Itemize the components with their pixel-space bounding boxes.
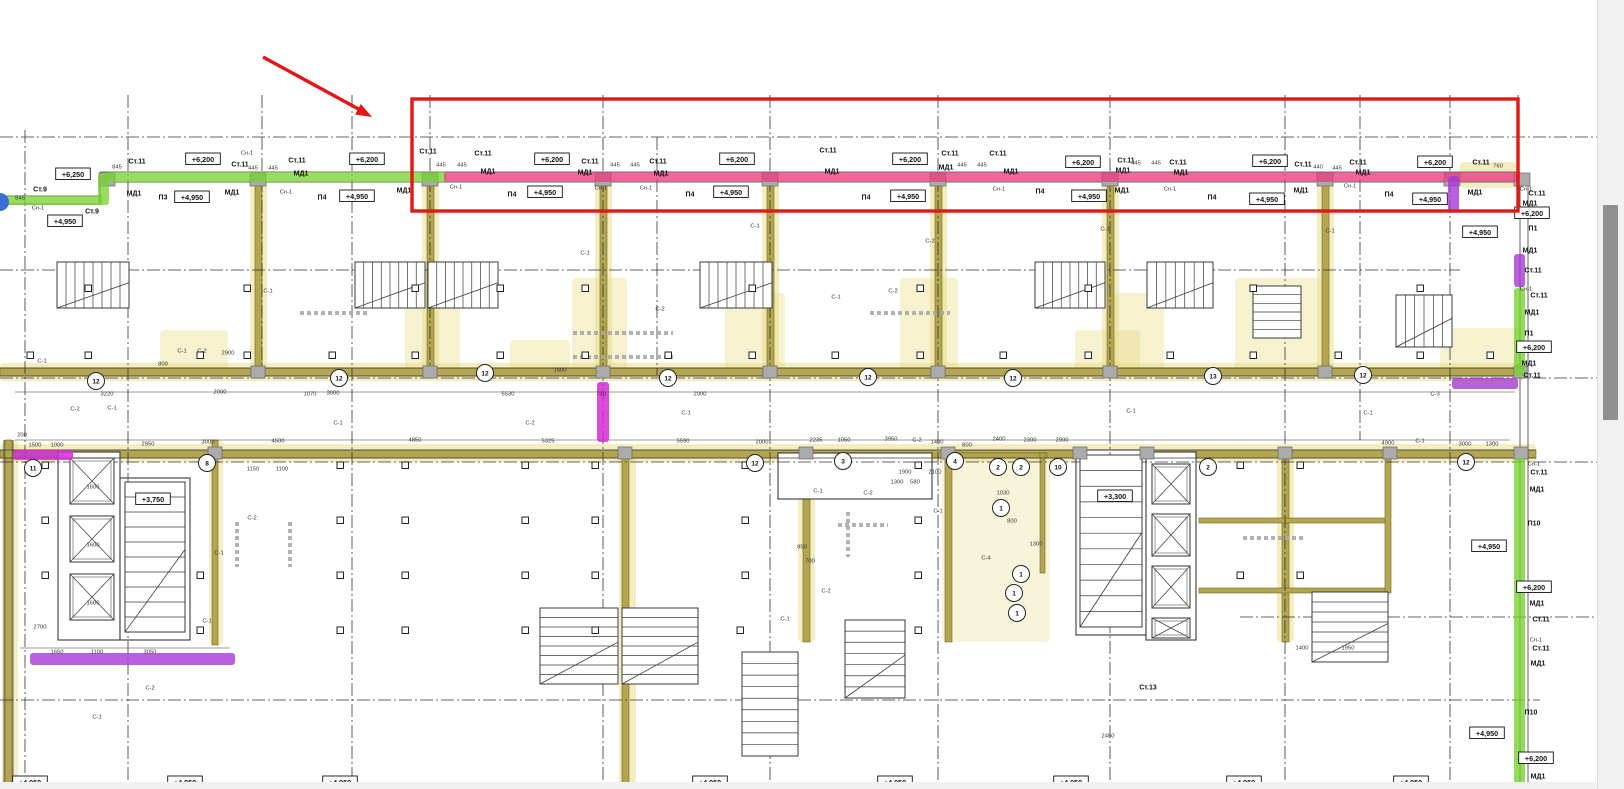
wall-type-label: МД1 [294,171,309,178]
column-marker [665,352,672,359]
dim-label: 1600 [87,485,100,491]
wall-type-label: МД1 [825,169,840,176]
wall-type-label: МД1 [1522,361,1537,368]
boxed-elevation-text: +6,200 [1259,157,1281,166]
grid-bubble-number: 12 [1462,459,1470,466]
wall-type-label: Ст.11 [1524,268,1541,275]
column-marker [832,352,839,359]
column-marker [1250,352,1257,359]
column-marker [1237,462,1244,469]
column-marker [402,627,409,634]
vertical-scrollbar-track[interactable] [1597,0,1624,789]
column-marker [522,572,529,579]
stair-symbol [1147,262,1213,308]
dim-label: 5590 [677,439,690,445]
wall-type-label: П10 [1525,710,1538,717]
concrete-column [596,366,610,378]
dim-label: Сн-1 [640,186,653,192]
wall-type-label: Ст.11 [474,151,491,158]
wall-highlight-yellow [160,330,228,372]
column-marker [1167,352,1174,359]
concrete-column [1073,447,1087,459]
column-marker [42,517,49,524]
dim-label: С-1 [107,406,116,412]
wall-type-label: Ст.9 [85,209,99,216]
dim-label: 2950 [142,442,155,448]
dim-label: С-1 [1100,227,1109,233]
dim-label: С-1 [333,421,342,427]
dim-label: С-1 [202,619,211,625]
wall-highlight-purple [1452,378,1518,389]
dim-label: 2900 [222,351,235,357]
boxed-elevation-text: +6,200 [1525,754,1547,763]
boxed-elevation-text: +4,950 [897,192,919,201]
wall-segment [212,440,218,645]
dim-label: 445 [610,163,620,169]
dim-label: 1050 [838,438,851,444]
boxed-elevation-text: +4,950 [720,188,742,197]
concrete-column [251,366,265,378]
boxed-elevation-text: +4,950 [534,188,556,197]
wall-highlight-magenta [13,450,73,460]
wall-type-label: П4 [1385,192,1394,199]
dim-label: 730 [596,392,606,398]
wall-type-label: МД1 [1004,169,1019,176]
dim-label: 3050 [144,650,157,656]
wall-type-label: Ст.11 [1530,293,1547,300]
drawing-viewer: 1212121212121312118123422102121111+6,250… [0,0,1624,789]
dim-label: 445 [630,163,640,169]
dim-label: 2300 [1024,438,1037,444]
wall-highlight-purple [1514,254,1525,287]
dim-label: С-1 [1325,229,1334,235]
dim-label: Сн-1 [450,185,463,191]
dim-label: 440 [1313,165,1323,171]
grid-bubble-number: 11 [30,465,37,472]
boxed-elevation-text: +6,200 [1072,158,1094,167]
dim-label: Сн-1 [1344,184,1357,190]
wall-type-label: Ст.11 [649,159,666,166]
dim-label: 1500 [554,368,567,374]
wall-type-label: П4 [686,192,695,199]
dim-label: Сн-1 [280,190,293,196]
grid-bubble-number: 12 [92,378,100,385]
dim-label: 1600 [87,543,100,549]
wall-type-label: П4 [1036,189,1045,196]
dim-label: С-2 [197,349,206,355]
dim-label: С-1 [813,489,822,495]
column-marker [522,462,529,469]
grid-bubble-number: 10 [1054,464,1062,471]
dim-label: С-2 [912,438,921,444]
dim-label: 800 [158,362,168,368]
column-marker [1250,285,1257,292]
column-marker [337,572,344,579]
wall-highlight-yellow [510,340,570,370]
wall-type-label: МД1 [1174,170,1189,177]
column-marker [1297,572,1304,579]
wall-type-label: Ст.11 [1523,373,1540,380]
grid-bubble-number: 1 [999,505,1003,512]
wall-type-label: Ст.11 [1528,191,1545,198]
wall-type-label: Ст.11 [128,159,145,166]
boxed-elevation-text: +6,200 [899,155,921,164]
dim-label: 200 [17,433,27,439]
column-marker [85,285,92,292]
dim-label: С-1 [580,251,589,257]
dim-label: 445 [436,163,446,169]
dim-label: 5325 [542,439,555,445]
boxed-elevation-text: +4,950 [181,193,203,202]
concrete-column [1514,447,1528,459]
grid-bubble-number: 12 [864,374,872,381]
boxed-elevation-text: +4,950 [1419,195,1441,204]
wall-type-label: П4 [508,192,517,199]
wall-segment [945,453,952,642]
dim-label: 1300 [1030,542,1043,548]
boxed-elevation-text: +6,250 [62,170,84,179]
dim-label: 1100 [276,467,288,473]
grid-bubble-number: 1 [1019,571,1023,578]
boxed-elevation-text: +6,200 [1521,209,1543,218]
column-marker [1487,352,1494,359]
grid-bubble-number: 1 [1015,610,1019,617]
stair-symbol [1312,592,1388,662]
wall-type-label: МД1 [1530,487,1545,494]
column-marker [1335,352,1342,359]
wall-type-label: МД1 [127,191,142,198]
column-marker [402,462,409,469]
column-marker [1085,352,1092,359]
dim-label: 1950 [1342,646,1355,652]
boxed-elevation-text: +6,200 [356,155,378,164]
dim-label: Сн-1 [1164,187,1177,193]
dim-label: Сн-1 [1528,462,1541,468]
column-marker [42,572,49,579]
wall-highlight-green [106,172,446,182]
wall-segment [255,181,262,370]
grid-bubble-number: 8 [205,460,209,467]
wall-type-label: Ст.11 [1532,617,1549,624]
column-marker [917,285,924,292]
boxed-elevation-text: +3,750 [142,495,164,504]
column-marker [582,285,589,292]
grid-bubble-number: 12 [481,370,489,377]
concrete-column [618,447,632,459]
dim-label: 3950 [885,437,898,443]
column-marker [27,352,34,359]
wall-highlight-green [1514,458,1525,789]
dim-label: С-1 [1415,439,1424,445]
column-marker [197,572,204,579]
grid-bubble-number: 2 [996,464,1000,471]
dim-label: 1300 [891,480,904,486]
dim-label: 2000 [214,390,227,396]
dim-label: 3000 [1459,442,1472,448]
dim-label: С-1 [750,224,759,230]
wall-segment [1385,453,1391,593]
dim-label: 1500 [29,443,42,449]
wall-type-label: МД1 [1468,190,1483,197]
dim-label: 1400 [1296,646,1309,652]
dim-label: 845 [112,165,122,171]
dim-label: С-1 [780,617,789,623]
column-marker [85,352,92,359]
dim-label: С-1 [92,715,101,721]
column-marker [402,517,409,524]
dim-label: 845 [15,196,25,202]
column-marker [592,627,599,634]
column-marker [592,517,599,524]
wall-type-label: Ст.11 [1169,160,1186,167]
floor-plan-svg: 1212121212121312118123422102121111+6,250… [0,0,1597,789]
column-marker [522,517,529,524]
column-marker [1297,462,1304,469]
boxed-elevation-text: +6,200 [192,155,214,164]
dim-label: 1600 [87,601,100,607]
wall-type-label: Ст.11 [989,151,1006,158]
wall-type-label: МД1 [1294,188,1309,195]
dim-label: 4850 [409,438,422,444]
dim-label: С-1 [831,295,840,301]
dim-label: 1000 [51,443,64,449]
dim-label: 4500 [272,439,285,445]
dim-label: С-1 [37,359,46,365]
dim-label: С-2 [247,516,256,522]
grid-bubble-number: 12 [664,375,672,382]
stair-symbol [845,620,905,698]
dim-label: 3220 [101,392,114,398]
dim-label: С-2 [821,589,830,595]
wall-type-label: П1 [1525,331,1534,338]
dim-label: С-1 [263,289,272,295]
wall-type-label: МД1 [481,169,496,176]
wall-type-label: МД1 [578,170,593,177]
wall-type-label: Ст.11 [581,159,598,166]
wall-segment [5,440,12,789]
boxed-elevation-text: +6,200 [1523,583,1545,592]
dim-label: С-2 [655,307,664,313]
dim-label: 5530 [502,392,515,398]
dim-label: С-2 [888,289,897,295]
grid-bubble-number: 2 [1206,464,1210,471]
dim-label: 4900 [1382,441,1395,447]
concrete-column [931,366,945,378]
wall-type-label: П4 [1208,195,1217,202]
dim-label: С-1 [681,411,690,417]
column-marker [749,285,756,292]
dim-label: 445 [457,163,467,169]
dim-label: 445 [268,166,278,172]
column-marker [915,572,922,579]
concrete-column [1383,447,1397,459]
wall-type-label: МД1 [397,188,412,195]
wall-type-label: Ст.13 [1139,685,1157,692]
boxed-elevation-text: +6,200 [1424,158,1446,167]
vertical-scrollbar-thumb[interactable] [1603,205,1618,420]
dim-label: 445 [977,163,987,169]
column-marker [337,462,344,469]
column-marker [337,517,344,524]
dim-label: С-4 [981,556,991,562]
dim-label: 1100 [91,650,103,656]
grid-bubble-number: 12 [1009,375,1017,382]
column-marker [917,352,924,359]
wall-type-label: МД1 [1523,201,1538,208]
dim-label: 445 [1332,166,1342,172]
dim-label: 445 [248,166,258,172]
wall-type-label: МД1 [1525,310,1540,317]
wall-type-label: Ст.9 [33,187,47,194]
column-marker [1417,285,1424,292]
dim-label: С-1 [214,551,223,557]
annotation-arrowhead [355,104,372,117]
wall-type-label: МД1 [1116,168,1131,175]
grid-bubble-number: 3 [841,458,845,465]
dim-label: 1650 [51,650,64,656]
dim-label: С-2 [70,407,79,413]
room-outline [778,453,932,499]
dim-label: С-1 [177,349,186,355]
grid-bubble-number: 12 [335,375,343,382]
dim-label: 580 [910,480,920,486]
dim-label: Сн-1 [241,151,254,157]
dim-label: С-2 [525,421,534,427]
column-marker [1237,572,1244,579]
bottom-bar [0,782,1597,789]
dim-label: 2400 [993,437,1006,443]
column-marker [244,352,251,359]
column-marker [197,627,204,634]
column-marker [497,352,504,359]
column-marker [1417,352,1424,359]
dim-label: Сн-1 [32,206,45,212]
dim-label: 2000 [756,440,769,446]
wall-type-label: МД1 [1523,248,1538,255]
column-marker [742,517,749,524]
stair-symbol [742,652,798,756]
annotation-red-arrow [263,57,364,112]
dim-label: 445 [1151,161,1161,167]
wall-type-label: МД1 [225,190,240,197]
column-marker [412,285,419,292]
wall-type-label: Ст.11 [231,162,248,169]
wall-segment [0,368,1522,376]
column-marker [915,627,922,634]
wall-type-label: Ст.11 [819,148,836,155]
dim-label: 1300 [1486,442,1499,448]
boxed-elevation-text: +4,950 [54,217,76,226]
dim-label: 1150 [247,467,259,473]
dim-label: 445 [957,163,967,169]
wall-type-label: П4 [318,195,327,202]
column-marker [1000,352,1007,359]
dim-label: Сн-1 [1530,638,1543,644]
wall-segment [1199,518,1389,523]
dim-label: 1400 [931,440,944,446]
wall-segment [0,450,1536,458]
dim-label: 1900 [899,470,912,476]
boxed-elevation-text: +4,950 [346,192,368,201]
column-marker [592,572,599,579]
column-marker [737,627,744,634]
column-marker [42,462,49,469]
dim-label: 3000 [202,440,215,446]
dim-label: 3000 [327,391,340,397]
wall-type-label: МД1 [1356,170,1371,177]
concrete-column [763,366,777,378]
dim-label: С-3 [1430,392,1439,398]
concrete-column [1103,366,1117,378]
annotation-red-box [412,99,1518,211]
column-marker [497,285,504,292]
boxed-elevation-text: +6,200 [1523,343,1545,352]
wall-highlight-yellow [900,278,958,370]
dim-label: 2100 [929,470,942,476]
dim-label: С-1 [1363,411,1372,417]
column-marker [337,627,344,634]
wall-type-label: Ст.11 [1472,160,1489,167]
boxed-elevation-text: +6,200 [726,155,748,164]
boxed-elevation-text: +4,950 [1478,542,1500,551]
stair-symbol [1080,455,1142,627]
boxed-elevation-text: +4,950 [1078,192,1100,201]
grid-bubble-number: 1 [1012,590,1016,597]
boxed-elevation-text: +4,950 [1469,228,1491,237]
boxed-elevation-text: +3,300 [1104,492,1126,501]
dim-label: С-2 [145,686,154,692]
wall-type-label: МД1 [1531,661,1546,668]
wall-type-label: П3 [159,195,168,202]
dim-label: 2000 [694,392,707,398]
dim-label: С-1 [1126,409,1135,415]
column-marker [244,285,251,292]
column-marker [582,352,589,359]
wall-type-label: Ст.11 [419,149,436,156]
column-marker [742,572,749,579]
wall-type-label: МД1 [654,171,669,178]
grid-bubble-number: 12 [1359,372,1367,379]
dim-label: Сн-1 [595,186,608,192]
dim-label: 2700 [34,625,47,631]
boxed-elevation-text: +4,950 [1476,729,1498,738]
dim-label: 445 [1131,161,1141,167]
concrete-column [423,366,437,378]
wall-type-label: Ст.11 [1532,646,1549,653]
column-marker [1085,285,1092,292]
concrete-column [1318,366,1332,378]
boxed-elevation-text: +6,200 [541,155,563,164]
dim-label: 800 [962,443,972,449]
wall-type-label: Ст.11 [941,151,958,158]
wall-type-label: Ст.11 [1530,470,1547,477]
dim-label: 850 [797,545,807,551]
wall-segment [1040,453,1045,573]
grid-bubble-number: 4 [953,458,957,465]
dim-label: С-2 [925,239,934,245]
column-marker [402,572,409,579]
dim-label: Сн-1 [993,187,1006,193]
grid-bubble-number: 2 [1019,464,1023,471]
dim-label: 1030 [997,491,1010,497]
column-marker [749,352,756,359]
column-marker [592,462,599,469]
dim-label: 2450 [1102,734,1115,740]
dim-label: С-2 [863,491,872,497]
wall-type-label: Ст.11 [1349,160,1366,167]
dim-label: С-1 [933,509,942,515]
wall-type-label: Ст.11 [1294,162,1311,169]
